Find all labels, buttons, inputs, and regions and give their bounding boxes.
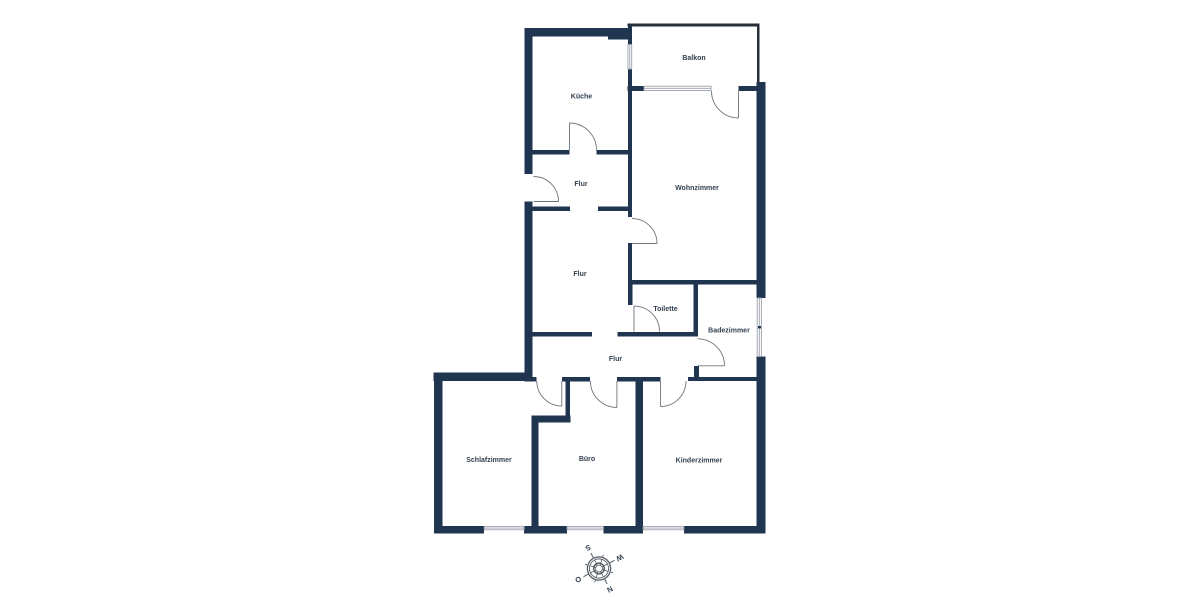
svg-text:Büro: Büro [579,456,595,463]
svg-text:Kinderzimmer: Kinderzimmer [676,458,723,465]
svg-text:Schlafzimmer: Schlafzimmer [466,457,512,464]
svg-text:Flur: Flur [574,181,587,188]
svg-text:Flur: Flur [609,356,622,363]
svg-text:Flur: Flur [573,271,586,278]
svg-text:Toilette: Toilette [653,306,677,313]
svg-text:Küche: Küche [571,94,593,101]
svg-text:Badezimmer: Badezimmer [708,328,750,335]
svg-text:Wohnzimmer: Wohnzimmer [675,185,719,192]
svg-text:Balkon: Balkon [682,55,705,62]
